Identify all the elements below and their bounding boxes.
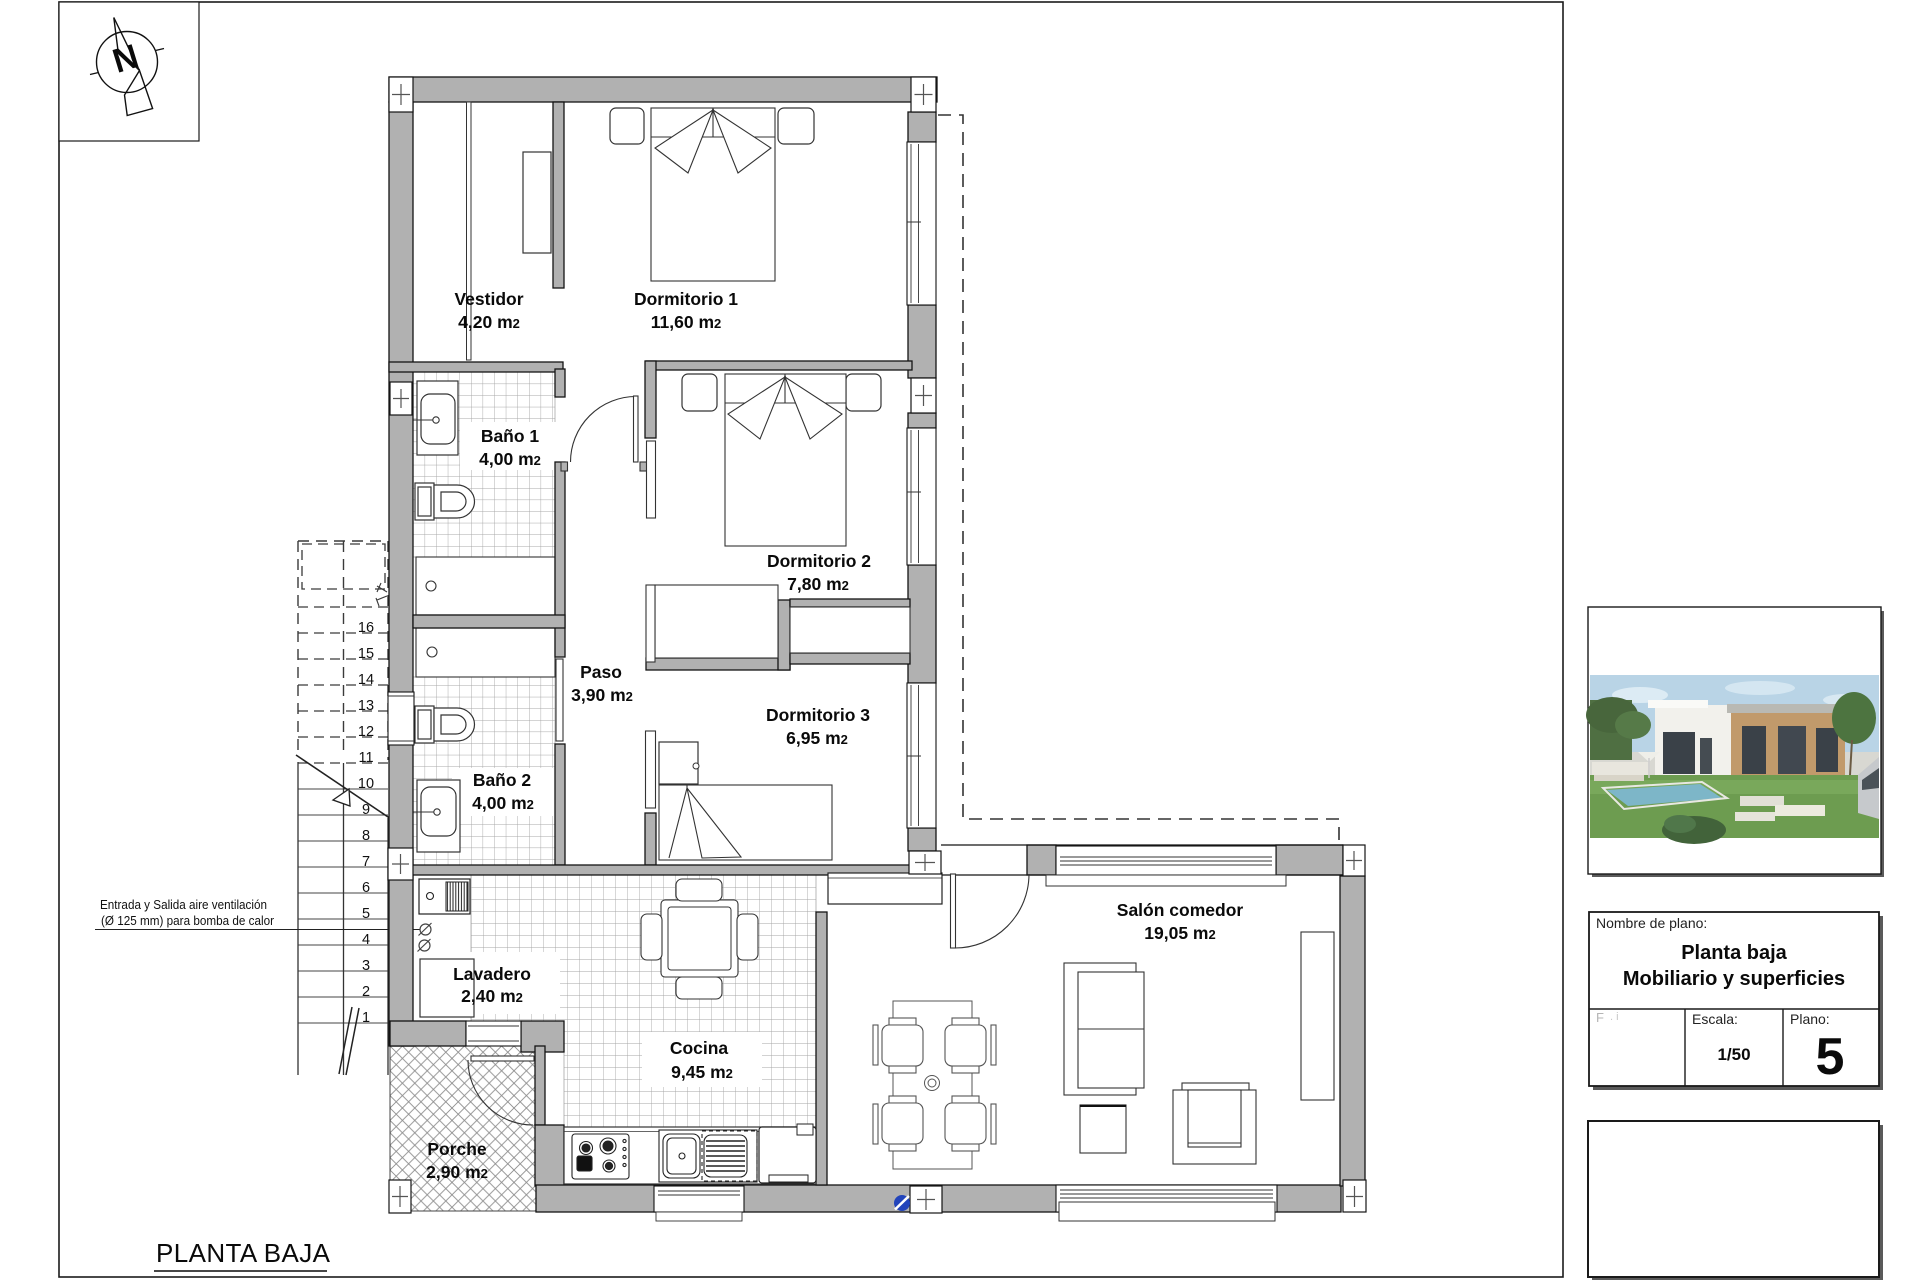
svg-text:Salón comedor: Salón comedor — [1117, 900, 1244, 920]
svg-text:Nombre de plano:: Nombre de plano: — [1596, 915, 1707, 931]
svg-text:10: 10 — [358, 776, 374, 792]
svg-text:14: 14 — [358, 672, 374, 688]
svg-text:2,90 m2: 2,90 m2 — [426, 1162, 488, 1182]
svg-text:1/50: 1/50 — [1717, 1045, 1750, 1064]
svg-text:Cocina: Cocina — [670, 1038, 729, 1058]
svg-text:3,90 m2: 3,90 m2 — [571, 685, 633, 705]
svg-text:4,00 m2: 4,00 m2 — [472, 793, 534, 813]
svg-text:Dormitorio 1: Dormitorio 1 — [634, 289, 738, 309]
svg-text:2: 2 — [362, 984, 370, 1000]
svg-text:9: 9 — [362, 802, 370, 818]
svg-text:Lavadero: Lavadero — [453, 964, 531, 984]
svg-text:6: 6 — [362, 880, 370, 896]
svg-text:8: 8 — [362, 828, 370, 844]
svg-text:7,80 m2: 7,80 m2 — [787, 574, 849, 594]
svg-text:Vestidor: Vestidor — [454, 289, 523, 309]
svg-text:2,40 m2: 2,40 m2 — [461, 986, 523, 1006]
svg-text:(Ø 125 mm) para bomba de calor: (Ø 125 mm) para bomba de calor — [101, 913, 275, 928]
svg-text:PLANTA BAJA: PLANTA BAJA — [156, 1238, 331, 1268]
svg-text:12: 12 — [358, 724, 374, 740]
svg-text:5: 5 — [1816, 1028, 1845, 1086]
svg-text:11,60 m2: 11,60 m2 — [651, 312, 721, 332]
svg-text:Dormitorio 2: Dormitorio 2 — [767, 551, 871, 571]
svg-text:Entrada y Salida aire ventilac: Entrada y Salida aire ventilación — [100, 897, 267, 912]
svg-text:Baño 1: Baño 1 — [481, 426, 540, 446]
svg-text:1: 1 — [362, 1010, 370, 1026]
svg-text:Planta baja: Planta baja — [1681, 942, 1787, 964]
svg-text:5: 5 — [362, 906, 370, 922]
svg-text:Baño 2: Baño 2 — [473, 770, 532, 790]
svg-text:. i: . i — [1610, 1011, 1619, 1023]
svg-text:4,00 m2: 4,00 m2 — [479, 449, 541, 469]
svg-text:19,05 m2: 19,05 m2 — [1144, 923, 1215, 943]
svg-text:13: 13 — [358, 698, 374, 714]
svg-text:9,45 m2: 9,45 m2 — [671, 1062, 733, 1082]
svg-text:Porche: Porche — [427, 1139, 487, 1159]
svg-text:F: F — [1596, 1010, 1604, 1025]
svg-text:7: 7 — [362, 854, 370, 870]
svg-text:4,20 m2: 4,20 m2 — [458, 312, 520, 332]
svg-text:3: 3 — [362, 958, 370, 974]
svg-text:Paso: Paso — [580, 662, 622, 682]
svg-text:Dormitorio 3: Dormitorio 3 — [766, 705, 870, 725]
svg-text:11: 11 — [358, 750, 373, 766]
svg-text:16: 16 — [358, 620, 374, 636]
svg-text:4: 4 — [362, 932, 370, 948]
svg-text:15: 15 — [358, 646, 374, 662]
svg-text:Escala:: Escala: — [1692, 1011, 1738, 1027]
svg-text:Mobiliario y superficies: Mobiliario y superficies — [1623, 968, 1845, 990]
svg-text:6,95 m2: 6,95 m2 — [786, 728, 848, 748]
svg-text:Plano:: Plano: — [1790, 1011, 1830, 1027]
